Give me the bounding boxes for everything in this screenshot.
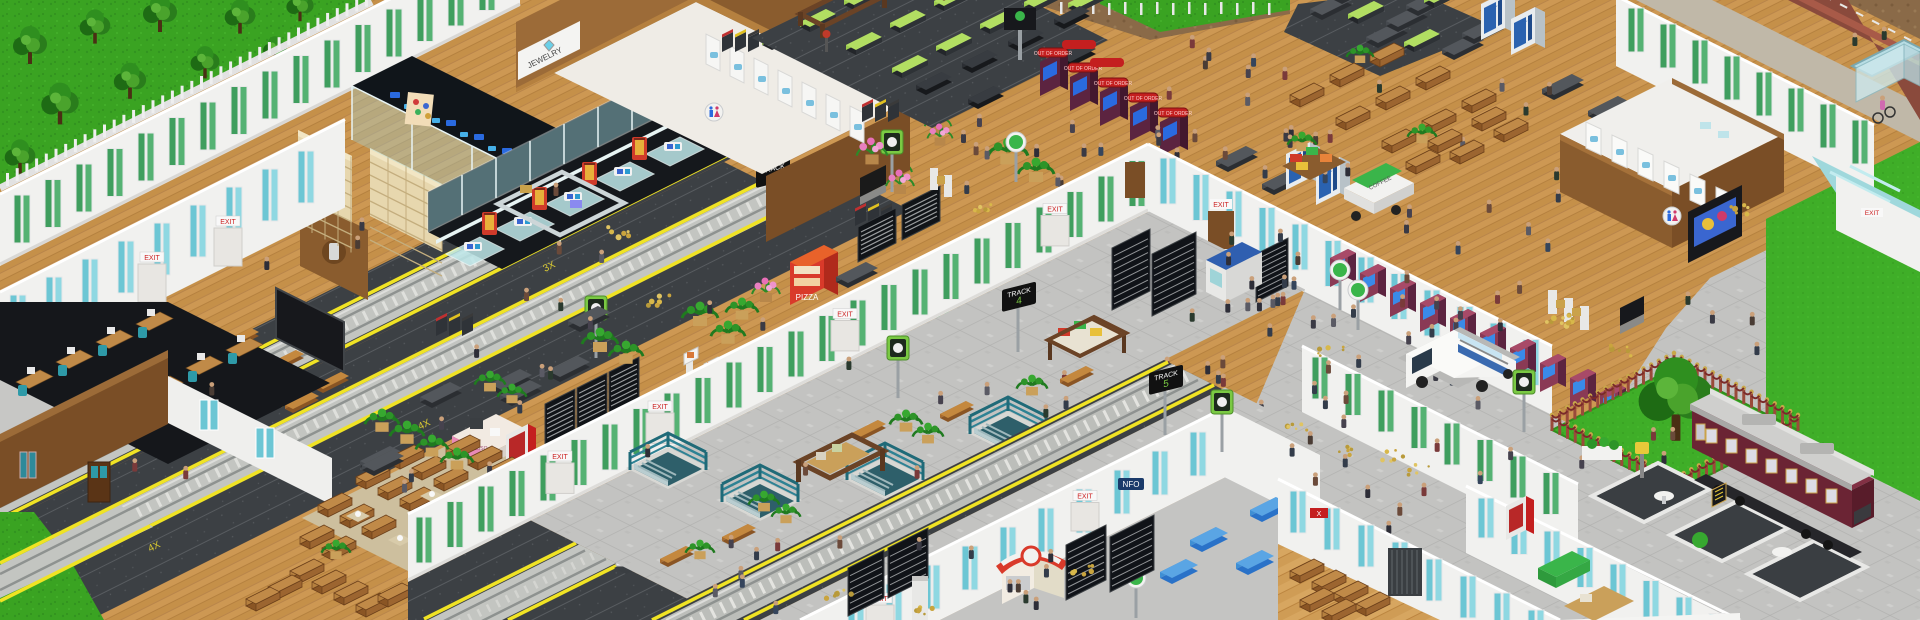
svg-text:X: X [1317,511,1322,518]
svg-text:5: 5 [1163,378,1169,390]
svg-text:OUT OF ORDER: OUT OF ORDER [1124,96,1163,102]
svg-text:EXIT: EXIT [1077,494,1093,501]
svg-text:EXIT: EXIT [552,454,568,461]
svg-text:OUT OF ORDER: OUT OF ORDER [1034,51,1073,57]
svg-text:NFO: NFO [1123,480,1140,489]
svg-text:PIZZA: PIZZA [796,293,819,302]
svg-text:EXIT: EXIT [652,404,668,411]
svg-text:4: 4 [1016,295,1022,307]
svg-text:EXIT: EXIT [1047,207,1063,214]
svg-text:EXIT: EXIT [837,312,853,319]
svg-text:EXIT: EXIT [144,255,160,262]
svg-text:OUT OF ORDER: OUT OF ORDER [1094,81,1133,87]
svg-text:OUT OF ORDER: OUT OF ORDER [1154,111,1193,117]
svg-text:EXIT: EXIT [1865,210,1879,217]
svg-text:EXIT: EXIT [1213,202,1229,209]
svg-text:EXIT: EXIT [220,219,236,226]
